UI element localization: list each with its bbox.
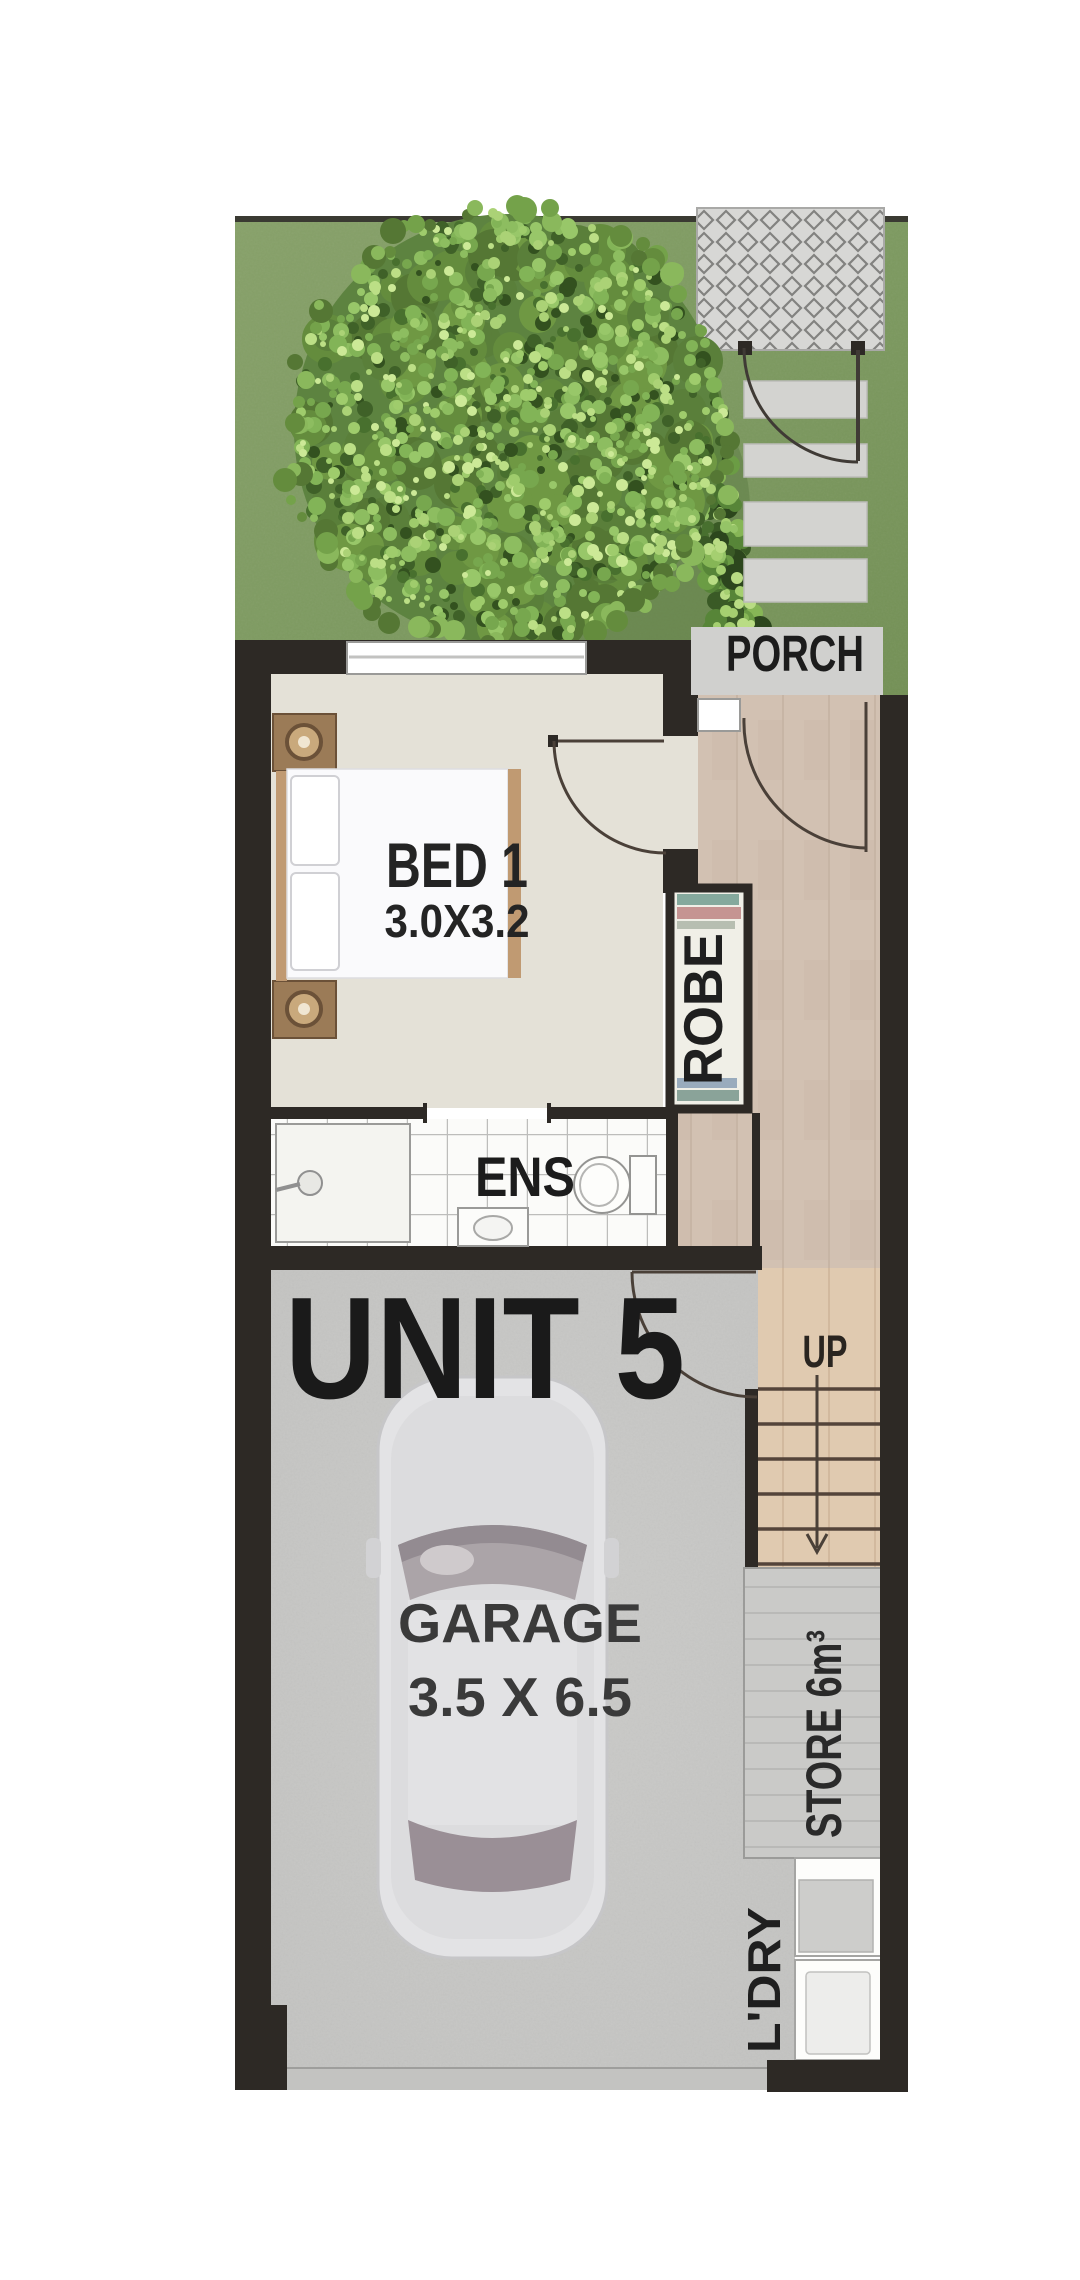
svg-text:PORCH: PORCH bbox=[726, 625, 864, 682]
svg-text:3.0X3.2: 3.0X3.2 bbox=[385, 895, 530, 947]
svg-text:STORE 6m³: STORE 6m³ bbox=[796, 1630, 852, 1838]
svg-text:3.5 X 6.5: 3.5 X 6.5 bbox=[408, 1666, 632, 1728]
svg-text:GARAGE: GARAGE bbox=[398, 1592, 642, 1654]
svg-text:L'DRY: L'DRY bbox=[738, 1907, 790, 2053]
svg-text:UP: UP bbox=[803, 1326, 848, 1377]
svg-text:UNIT 5: UNIT 5 bbox=[285, 1267, 685, 1429]
svg-text:ENS: ENS bbox=[475, 1145, 575, 1208]
svg-text:BED 1: BED 1 bbox=[386, 831, 528, 901]
svg-text:ROBE: ROBE bbox=[672, 933, 734, 1085]
